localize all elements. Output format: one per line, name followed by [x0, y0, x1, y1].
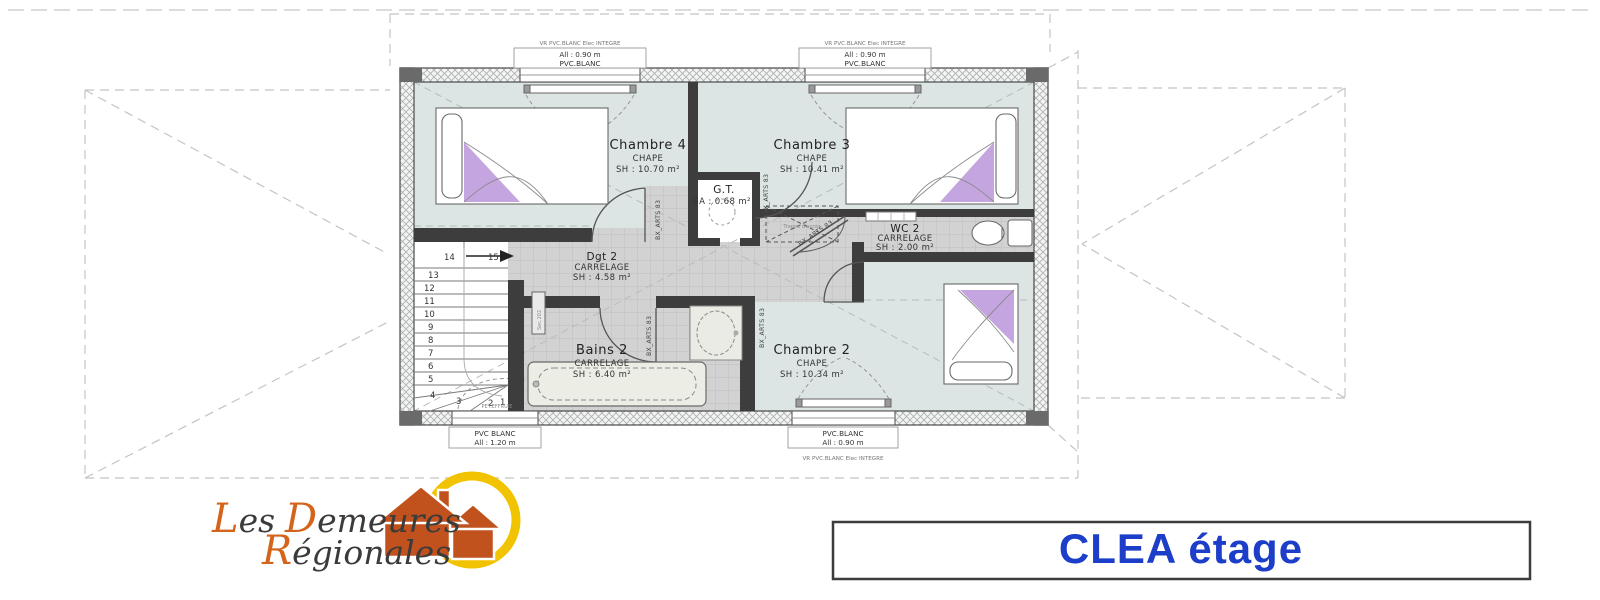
door-label-chambre2: BX_ARTS 83 [759, 308, 766, 348]
svg-text:SH : 6.40 m²: SH : 6.40 m² [573, 370, 631, 380]
svg-text:PVC BLANC: PVC BLANC [475, 429, 516, 438]
svg-text:5: 5 [428, 375, 433, 385]
svg-text:All : 1.20 m: All : 1.20 m [474, 438, 515, 447]
svg-text:PVC.BLANC: PVC.BLANC [560, 59, 601, 68]
svg-text:VR PVC.BLANC Elec INTEGRE: VR PVC.BLANC Elec INTEGRE [802, 456, 884, 462]
svg-text:SA : 0.68 m²: SA : 0.68 m² [693, 197, 751, 207]
svg-text:PVC.BLANC: PVC.BLANC [845, 59, 886, 68]
svg-text:4: 4 [430, 391, 435, 401]
svg-text:All : 0.90 m: All : 0.90 m [844, 50, 885, 59]
svg-text:12: 12 [424, 284, 435, 294]
towel-radiator-bains: Sec.202 [532, 292, 545, 334]
svg-text:Chambre 4: Chambre 4 [609, 138, 686, 153]
svg-text:SH : 4.58 m²: SH : 4.58 m² [573, 273, 631, 283]
svg-text:CHAPE: CHAPE [797, 154, 828, 164]
svg-text:VR PVC.BLANC Elec INTEGRE: VR PVC.BLANC Elec INTEGRE [539, 41, 621, 47]
svg-text:All : 0.90 m: All : 0.90 m [559, 50, 600, 59]
svg-text:11: 11 [424, 297, 435, 307]
svg-text:PET.EFFRUIE: PET.EFFRUIE [482, 404, 513, 410]
svg-text:10: 10 [424, 310, 435, 320]
svg-text:All : 0.90 m: All : 0.90 m [822, 438, 863, 447]
svg-text:8: 8 [428, 336, 433, 346]
svg-text:CHAPE: CHAPE [633, 154, 664, 164]
corridor-spur-floor [592, 228, 688, 242]
svg-text:PVC.BLANC: PVC.BLANC [823, 429, 864, 438]
svg-text:CARRELAGE: CARRELAGE [574, 359, 629, 369]
svg-text:Chambre 2: Chambre 2 [773, 343, 850, 358]
bed-chambre3 [846, 108, 1018, 204]
bed-chambre2 [944, 284, 1018, 384]
svg-text:SH : 2.00 m²: SH : 2.00 m² [876, 243, 934, 253]
washbasin [690, 306, 742, 360]
label-bains2: Bains 2 CARRELAGE SH : 6.40 m² [573, 343, 631, 380]
svg-text:15: 15 [488, 253, 499, 263]
company-logo: LesDemeures Régionales [211, 476, 516, 574]
svg-text:G.T.: G.T. [713, 184, 735, 196]
svg-text:SH : 10.41 m²: SH : 10.41 m² [780, 165, 844, 175]
svg-text:6: 6 [428, 362, 433, 372]
svg-text:13: 13 [428, 271, 439, 281]
radiator-label: Sec.202 [537, 310, 543, 330]
svg-text:9: 9 [428, 323, 433, 333]
door-label-chambre4: BX_ARTS 83 [655, 200, 662, 240]
bed-chambre4 [436, 108, 608, 204]
plan-title: CLEA étage [1059, 525, 1303, 572]
svg-text:CHAPE: CHAPE [797, 359, 828, 369]
radiator-wc2 [866, 212, 916, 221]
door-label-chambre3: BX_ARTS 83 [763, 174, 770, 214]
svg-text:14: 14 [444, 253, 455, 263]
floor-plan-drawing: Trappe d'accès BX_ARTS 83 BX_ARTS 83 BX_… [0, 0, 1600, 600]
svg-text:VR PVC.BLANC Elec INTEGRE: VR PVC.BLANC Elec INTEGRE [824, 41, 906, 47]
svg-text:SH : 10.34 m²: SH : 10.34 m² [780, 370, 844, 380]
svg-text:CARRELAGE: CARRELAGE [574, 263, 629, 273]
building-footprint: Trappe d'accès BX_ARTS 83 BX_ARTS 83 BX_… [400, 41, 1048, 462]
door-label-bains2: BX_ARTS 83 [646, 316, 653, 356]
svg-text:7: 7 [428, 349, 433, 359]
logo-text-line2: Régionales [261, 528, 451, 574]
svg-text:Chambre 3: Chambre 3 [773, 138, 850, 153]
floor-plan-page: Trappe d'accès BX_ARTS 83 BX_ARTS 83 BX_… [0, 0, 1600, 600]
svg-text:3: 3 [456, 397, 461, 407]
svg-text:SH : 10.70 m²: SH : 10.70 m² [616, 165, 680, 175]
svg-text:Dgt 2: Dgt 2 [587, 251, 618, 263]
title-block: CLEA étage [833, 522, 1530, 579]
svg-text:Bains 2: Bains 2 [576, 343, 628, 358]
